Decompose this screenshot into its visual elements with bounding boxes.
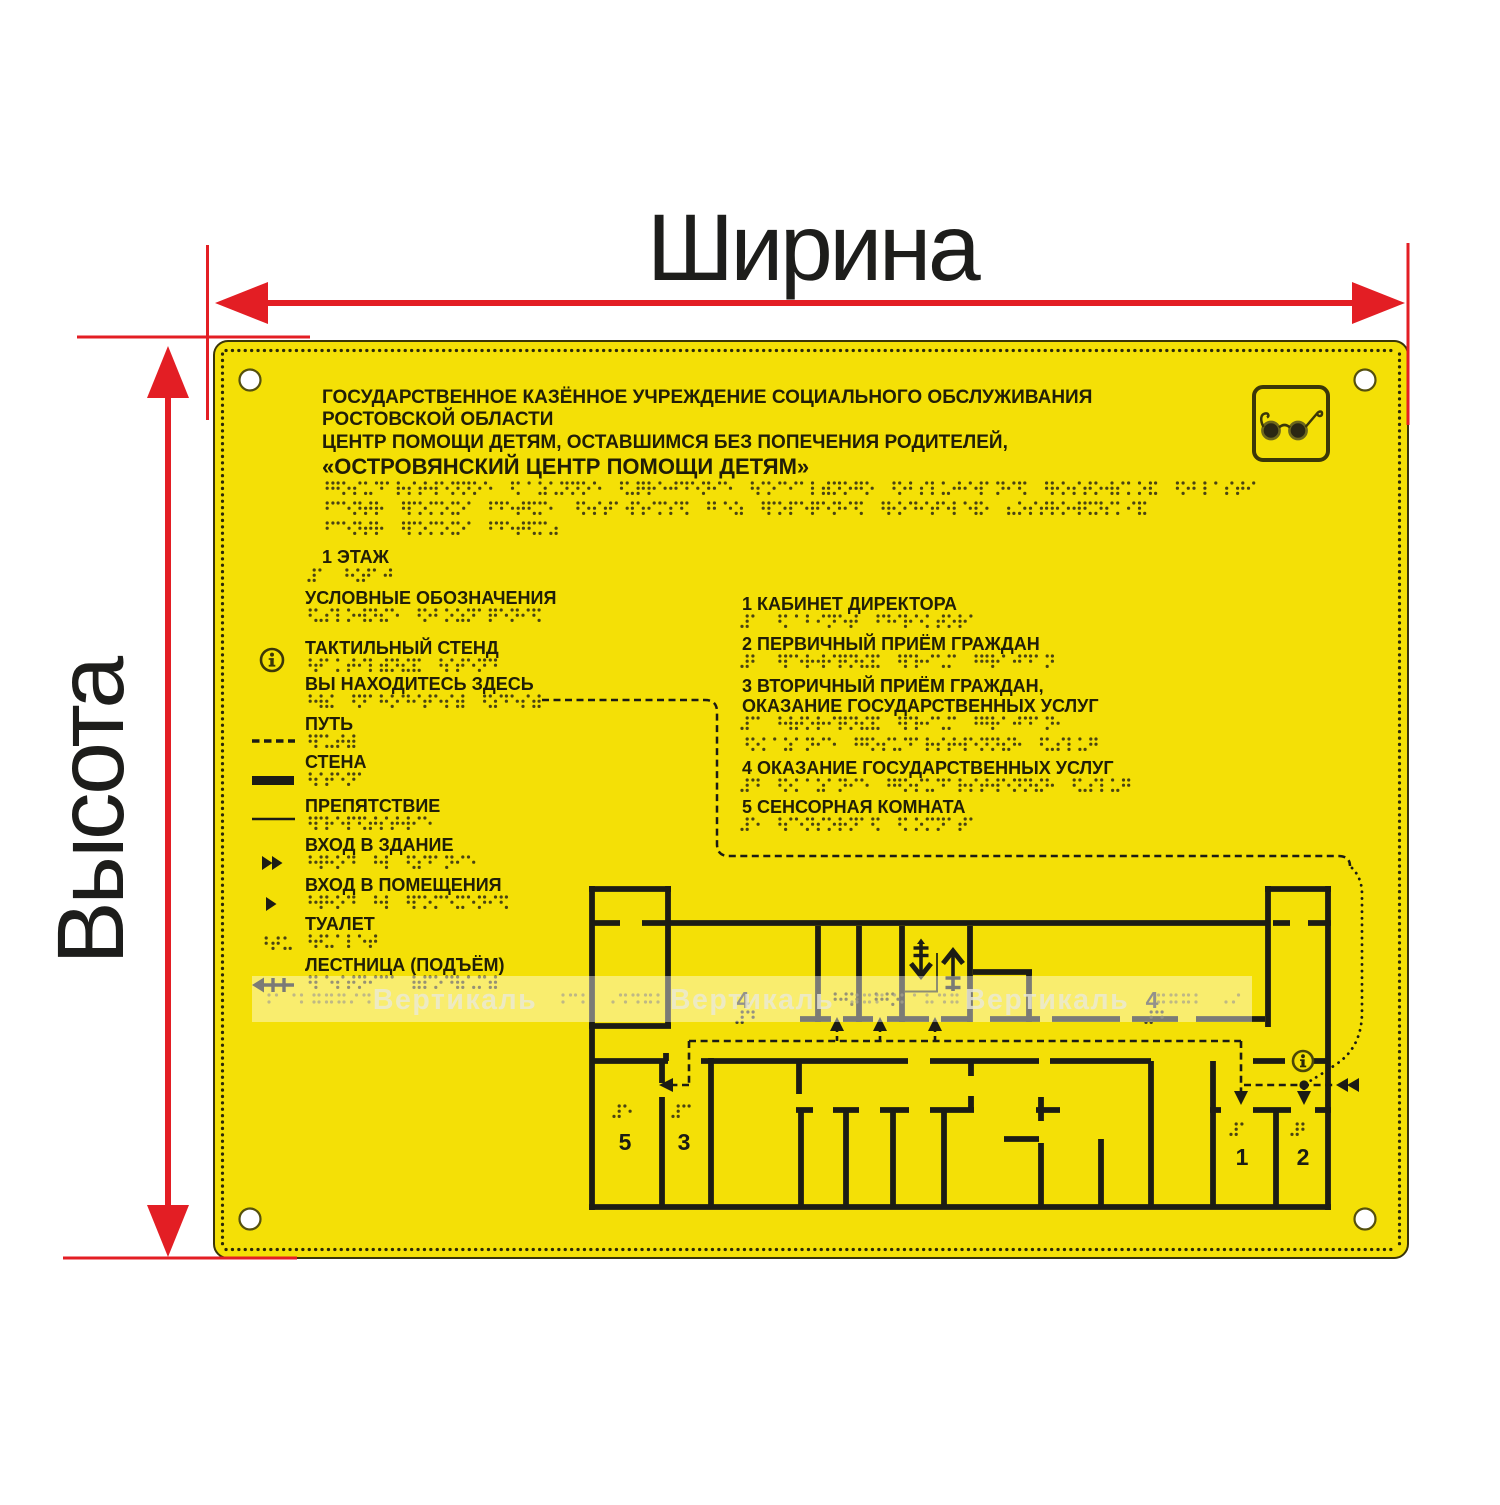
svg-text:Вертикаль: Вертикаль: [965, 984, 1129, 1016]
svg-text:1 КАБИНЕТ ДИРЕКТОРА: 1 КАБИНЕТ ДИРЕКТОРА: [742, 594, 957, 614]
svg-text:4 ОКАЗАНИЕ ГОСУДАРСТВЕННЫХ УСЛ: 4 ОКАЗАНИЕ ГОСУДАРСТВЕННЫХ УСЛУГ: [742, 758, 1114, 778]
svg-text:ГОСУДАРСТВЕННОЕ КАЗЁННОЕ УЧРЕЖ: ГОСУДАРСТВЕННОЕ КАЗЁННОЕ УЧРЕЖДЕНИЕ СОЦИ…: [322, 387, 1092, 408]
svg-text:СТЕНА: СТЕНА: [305, 752, 367, 772]
svg-text:1 ЭТАЖ: 1 ЭТАЖ: [322, 547, 390, 567]
svg-text:ВЫ НАХОДИТЕСЬ ЗДЕСЬ: ВЫ НАХОДИТЕСЬ ЗДЕСЬ: [305, 674, 534, 694]
svg-text:2 ПЕРВИЧНЫЙ ПРИЁМ ГРАЖДАН: 2 ПЕРВИЧНЫЙ ПРИЁМ ГРАЖДАН: [742, 633, 1040, 654]
svg-text:ВХОД В ПОМЕЩЕНИЯ: ВХОД В ПОМЕЩЕНИЯ: [305, 875, 502, 895]
svg-text:3 ВТОРИЧНЫЙ ПРИЁМ ГРАЖДАН,: 3 ВТОРИЧНЫЙ ПРИЁМ ГРАЖДАН,: [742, 675, 1044, 696]
svg-text:5: 5: [619, 1129, 632, 1155]
svg-text:УСЛОВНЫЕ ОБОЗНАЧЕНИЯ: УСЛОВНЫЕ ОБОЗНАЧЕНИЯ: [305, 588, 556, 608]
svg-text:ОКАЗАНИЕ ГОСУДАРСТВЕННЫХ УСЛУГ: ОКАЗАНИЕ ГОСУДАРСТВЕННЫХ УСЛУГ: [742, 696, 1099, 716]
svg-text:«ОСТРОВЯНСКИЙ ЦЕНТР ПОМОЩИ ДЕТ: «ОСТРОВЯНСКИЙ ЦЕНТР ПОМОЩИ ДЕТЯМ»: [322, 454, 809, 479]
svg-text:ВХОД В ЗДАНИЕ: ВХОД В ЗДАНИЕ: [305, 835, 453, 855]
svg-text:ПУТЬ: ПУТЬ: [305, 714, 353, 734]
svg-text:5 СЕНСОРНАЯ КОМНАТА: 5 СЕНСОРНАЯ КОМНАТА: [742, 797, 965, 817]
svg-text:2: 2: [1297, 1144, 1310, 1170]
svg-text:1: 1: [1236, 1144, 1249, 1170]
svg-text:ПРЕПЯТСТВИЕ: ПРЕПЯТСТВИЕ: [305, 796, 440, 816]
svg-text:ЦЕНТР ПОМОЩИ ДЕТЯМ, ОСТАВШИМСЯ: ЦЕНТР ПОМОЩИ ДЕТЯМ, ОСТАВШИМСЯ БЕЗ ПОПЕЧ…: [322, 431, 1008, 453]
svg-text:Вертикаль: Вертикаль: [373, 984, 537, 1016]
svg-text:РОСТОВСКОЙ ОБЛАСТИ: РОСТОВСКОЙ ОБЛАСТИ: [322, 408, 553, 430]
svg-text:Вертикаль: Вертикаль: [670, 984, 834, 1016]
svg-text:ТАКТИЛЬНЫЙ СТЕНД: ТАКТИЛЬНЫЙ СТЕНД: [305, 637, 499, 658]
svg-text:ЛЕСТНИЦА (ПОДЪЁМ): ЛЕСТНИЦА (ПОДЪЁМ): [305, 955, 504, 975]
svg-text:Ширина: Ширина: [647, 195, 981, 301]
svg-text:Высота: Высота: [38, 656, 144, 965]
svg-text:ТУАЛЕТ: ТУАЛЕТ: [305, 914, 375, 934]
svg-text:3: 3: [678, 1129, 691, 1155]
